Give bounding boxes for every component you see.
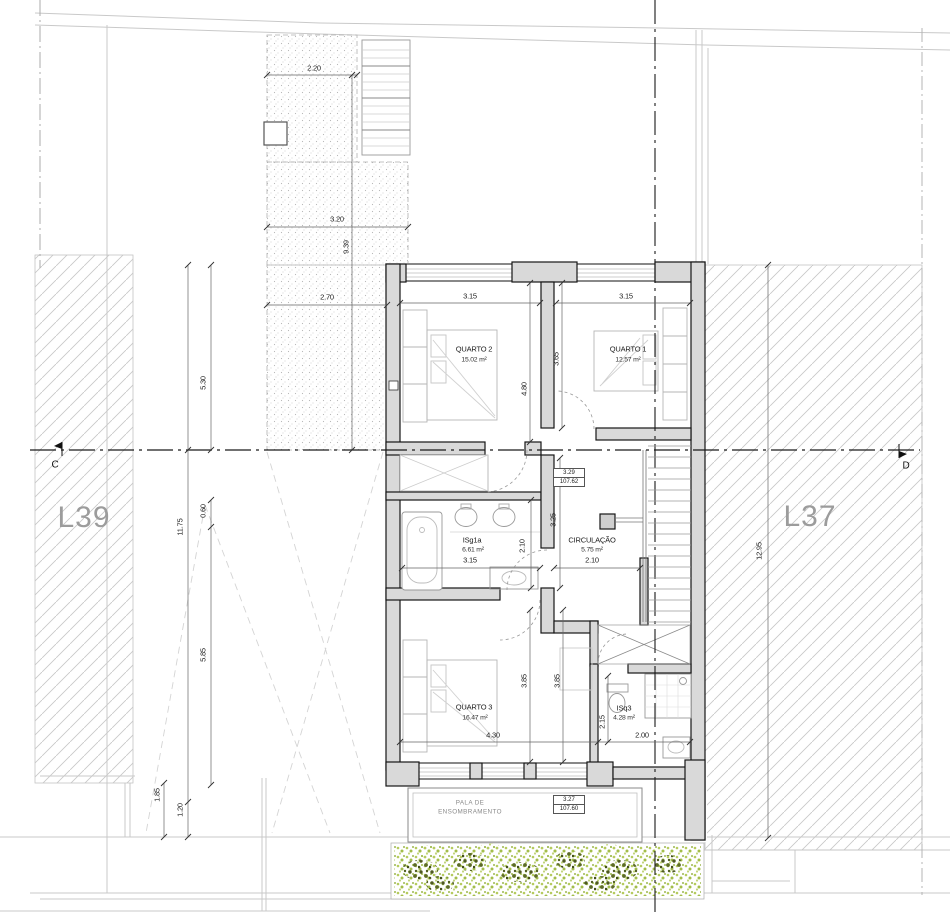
- wall-detail-box: [389, 381, 398, 390]
- room-area-quarto2: 15.02 m²: [461, 357, 486, 364]
- neighbor-lot-hatch-right: [705, 265, 922, 850]
- level-value-upper: 3.29: [554, 469, 584, 478]
- dim-label-right-12-95: 12.95: [755, 542, 764, 560]
- room-label-quarto1: QUARTO 1: [610, 345, 646, 354]
- dim-label-quarto2-depth: 4.80: [520, 382, 529, 396]
- dim-label-corridor-depth: 3.25: [549, 513, 558, 527]
- dim-label-left-0-60: 0.60: [199, 504, 208, 518]
- pala-label-line1: PALA DE: [456, 800, 485, 807]
- room-label-quarto3: QUARTO 3: [456, 703, 492, 712]
- floor-plan-page: 2.20 3.20 9.39 2.70 5.30 11.75 0.60 5.85…: [0, 0, 950, 917]
- section-marker-c: C: [51, 460, 58, 471]
- dim-label-quarto3-depth-a: 3.85: [520, 674, 529, 688]
- room-label-isq3: ISq3: [617, 704, 632, 713]
- floor-plan-drawing: [0, 0, 950, 917]
- dim-label-quarto2-width: 3.15: [463, 292, 477, 301]
- exterior-stair: [362, 40, 410, 155]
- patio-detail-box: [264, 122, 287, 145]
- vegetation-strip: [391, 843, 704, 899]
- dim-label-quarto1-depth: 3.65: [552, 352, 561, 366]
- dim-label-bath-depth: 2.10: [518, 539, 527, 553]
- yard-projection-lines: [146, 452, 383, 833]
- dim-label-left-1-85: 1.85: [153, 788, 162, 802]
- room-label-quarto2: QUARTO 2: [456, 345, 492, 354]
- pala-label-line2: ENSOMBRAMENTO: [438, 809, 502, 816]
- room-label-circulacao: CIRCULAÇÃO: [568, 536, 615, 545]
- level-marker-lower: 3.27 107.60: [553, 795, 585, 814]
- room-label-isg1a: ISg1a: [463, 536, 482, 545]
- lot-label-right: L37: [783, 500, 836, 534]
- section-marker-d: D: [902, 461, 909, 472]
- dim-label-quarto3-width: 4.30: [486, 731, 500, 740]
- lot-label-left: L39: [57, 501, 110, 535]
- dim-label-left-5-85: 5.85: [199, 648, 208, 662]
- dim-label-quarto3-depth-b: 3.85: [553, 674, 562, 688]
- room-area-isg1a: 6.61 m²: [462, 547, 484, 554]
- room-area-quarto1: 12.57 m²: [615, 357, 640, 364]
- dim-label-patio-width-mid: 3.20: [330, 215, 344, 224]
- room-area-quarto3: 16.47 m²: [462, 715, 487, 722]
- level-marker-upper: 3.29 107.62: [553, 468, 585, 487]
- dim-label-patio-width-low: 2.70: [320, 293, 334, 302]
- dim-label-isq3-width: 2.00: [635, 731, 649, 740]
- closet: [400, 455, 488, 491]
- dim-label-left-11-75: 11.75: [176, 518, 185, 535]
- dim-label-quarto1-width: 3.15: [619, 292, 633, 301]
- dim-label-corridor-width: 2.10: [585, 556, 599, 565]
- room-area-isq3: 4.28 m²: [613, 715, 635, 722]
- room-area-circulacao: 5.75 m²: [581, 547, 603, 554]
- dim-label-bath-width: 3.15: [463, 556, 477, 565]
- level-elevation-upper: 107.62: [554, 478, 584, 486]
- dim-label-left-1-20: 1.20: [176, 803, 185, 817]
- dim-label-patio-width-top: 2.20: [307, 64, 321, 73]
- dim-label-isq3-depth: 2.15: [598, 715, 607, 729]
- dim-label-left-5-30: 5.30: [199, 376, 208, 390]
- dim-label-patio-depth: 9.39: [342, 240, 351, 254]
- level-value-lower: 3.27: [554, 796, 584, 805]
- level-elevation-lower: 107.60: [554, 805, 584, 813]
